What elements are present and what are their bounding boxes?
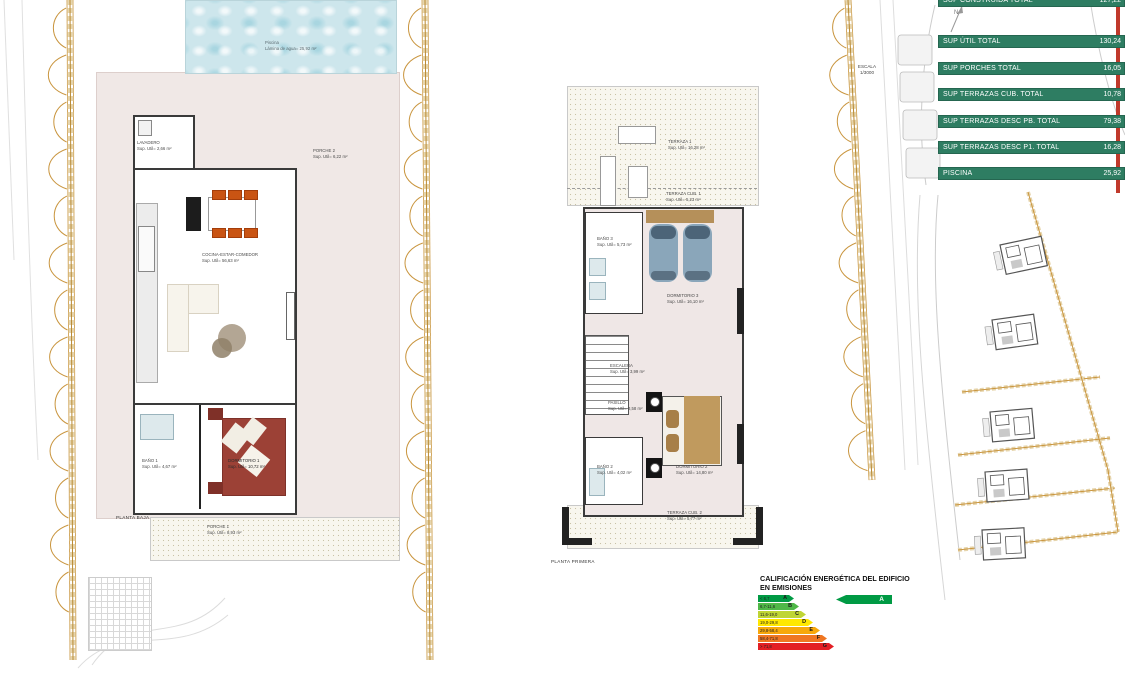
areas-row-label: SUP TERRAZAS DESC P1. TOTAL [943, 141, 1059, 154]
nightstand-lamp [650, 397, 660, 407]
energy-scale: < 6,7A 6,7-11,6B 11,6-19,0C 19,0-29,8D 2… [758, 595, 938, 655]
room-label-porche1: PORCHE 1 Sup. Util= 8,93 m² [207, 524, 242, 536]
energy-band-f: 58,4-71,8F [758, 635, 827, 642]
rug [212, 338, 232, 358]
chair [228, 228, 242, 238]
bed-3-pillow [651, 226, 676, 239]
room-label-lavadero: LAVADERO Sup. Util= 2,66 m² [137, 140, 172, 152]
bathroom1-sink [140, 414, 174, 440]
room-area: Sup. Util= 2,66 m² [137, 146, 172, 152]
band-range: 58,4-71,8 [760, 635, 778, 642]
energy-band-b: 6,7-11,6B [758, 603, 799, 610]
washer-icon [138, 120, 152, 136]
kitchen-sink [138, 226, 155, 272]
room-area: Sup. Util= 8,93 m² [207, 530, 242, 536]
areas-row-label: SUP TERRAZAS CUB. TOTAL [943, 88, 1043, 101]
areas-row-label: SUP TERRAZAS DESC PB. TOTAL [943, 115, 1060, 128]
band-letter: E [809, 627, 813, 634]
band-letter: C [795, 611, 799, 618]
nightstand-lamp [650, 463, 660, 473]
areas-row-label: SUP PORCHES TOTAL [943, 62, 1021, 75]
band-range: 19,0-29,8 [760, 619, 778, 626]
nightstand [208, 408, 223, 420]
room-label-terraza-cub1: TERRAZA CUB. 1 Sup. Util= 5,23 m² [666, 191, 701, 203]
areas-row: SUP TERRAZAS CUB. TOTAL 10,78 [938, 88, 1125, 101]
room-label-porche2: PORCHE 2 Sup. Util= 6,22 m² [313, 148, 348, 160]
planter [618, 126, 656, 144]
areas-row: SUP ÚTIL TOTAL 130,24 [938, 35, 1125, 48]
dining-table [208, 197, 256, 231]
scale-value: 1/3000 [845, 70, 889, 76]
corner-wall [562, 507, 569, 545]
bed-3-headboard [646, 210, 714, 223]
areas-row-value: 16,28 [1103, 141, 1121, 154]
chair [212, 190, 226, 200]
areas-row: SUP TERRAZAS DESC P1. TOTAL 16,28 [938, 141, 1125, 154]
wall-pilaster [737, 424, 744, 464]
areas-table: SUP CONSTRUIDA TOTAL 127,22 SUP ÚTIL TOT… [938, 0, 1125, 190]
areas-row: PISCINA 25,92 [938, 167, 1125, 180]
bed-3-pillow [685, 226, 710, 239]
chair [228, 190, 242, 200]
energy-band-e: 29,8-58,4E [758, 627, 820, 634]
areas-row-label: SUP CONSTRUIDA TOTAL [943, 0, 1033, 7]
kitchen-island [186, 197, 201, 231]
terraza-divider [567, 188, 757, 189]
scale-label: ESCALA 1/3000 [845, 64, 889, 76]
deck-hatch [88, 577, 152, 651]
chair [244, 190, 258, 200]
room-area: Sup. Util= 56,63 m² [202, 258, 258, 264]
areas-row: SUP PORCHES TOTAL 16,05 [938, 62, 1125, 75]
room-label-pasillo: PASILLO Sup. Util= 3,58 m² [608, 400, 643, 412]
porch1-area [150, 517, 400, 561]
pool-label: Piscina Lámina de agua= 25,92 m² [265, 40, 316, 52]
room-label-dormitorio3: DORMITORIO 3 Sup. Util= 16,10 m² [667, 293, 704, 305]
first-floor-title: PLANTA PRIMERA [551, 559, 595, 564]
planter [628, 166, 648, 198]
bed-2-pillow [666, 434, 679, 452]
bed-2-pillow [666, 410, 679, 428]
room-area: Sup. Util= 16,10 m² [667, 299, 704, 305]
bathroom3-fixture [589, 258, 606, 276]
band-letter: A [783, 595, 787, 602]
areas-row-value: 130,24 [1100, 35, 1121, 48]
band-letter: F [817, 635, 820, 642]
band-range: 29,8-58,4 [760, 627, 778, 634]
nightstand [208, 482, 223, 494]
energy-rating-arrow: A [836, 595, 892, 604]
room-label-bano2: BAÑO 2 Sup. Util= 4,02 m² [597, 464, 632, 476]
areas-row-value: 16,05 [1103, 62, 1121, 75]
band-range: 6,7-11,6 [760, 603, 775, 610]
band-range: 11,6-19,0 [760, 611, 777, 618]
room-label-terraza-cub2: TERRAZA CUB. 2 Sup. Util= 5,77 m² [667, 510, 702, 522]
wall-divider [199, 405, 201, 509]
room-area: Sup. Util= 4,02 m² [597, 470, 632, 476]
room-area: Sup. Util= 5,23 m² [666, 197, 701, 203]
band-letter: D [802, 619, 806, 626]
bed-2-cover [684, 396, 720, 464]
sofa [167, 284, 189, 352]
ground-floor-title: PLANTA BAJA [116, 515, 149, 520]
room-label-cocina: COCINA-ESTAR-COMEDOR Sup. Util= 56,63 m² [202, 252, 258, 264]
room-area: Sup. Util= 6,22 m² [313, 154, 348, 160]
room-area: Sup. Util= 16,28 m² [668, 145, 705, 151]
room-label-dormitorio1: DORMITORIO 1 Sup. Util= 10,72 m² [228, 458, 265, 470]
room-label-escalera: ESCALERA Sup. Util= 3,99 m² [610, 363, 645, 375]
areas-row-label: SUP ÚTIL TOTAL [943, 35, 1001, 48]
pool [185, 0, 397, 74]
room-area: Sup. Util= 5,77 m² [667, 516, 702, 522]
areas-row-value: 25,92 [1103, 167, 1121, 180]
chair [244, 228, 258, 238]
room-label-bano1: BAÑO 1 Sup. Util= 4,67 m² [142, 458, 177, 470]
room-area: Sup. Util= 14,80 m² [676, 470, 713, 476]
band-range: > 71,8 [760, 643, 772, 650]
window-seat [286, 292, 295, 340]
areas-row-value: 127,22 [1100, 0, 1121, 7]
room-area: Sup. Util= 3,99 m² [610, 369, 645, 375]
energy-title-line2: EN EMISIONES [760, 583, 910, 592]
bathroom3-fixture [589, 282, 606, 300]
plan-sheet: Piscina Lámina de agua= 25,92 m² LAVADER… [0, 0, 1125, 678]
pool-area: Lámina de agua= 25,92 m² [265, 46, 316, 52]
energy-band-a: < 6,7A [758, 595, 794, 602]
areas-row: SUP TERRAZAS DESC PB. TOTAL 79,38 [938, 115, 1125, 128]
areas-row-value: 79,38 [1103, 115, 1121, 128]
room-area: Sup. Util= 3,58 m² [608, 406, 643, 412]
band-letter: B [788, 603, 792, 610]
energy-rating-letter: A [879, 595, 884, 604]
room-area: Sup. Util= 10,72 m² [228, 464, 265, 470]
areas-row: SUP CONSTRUIDA TOTAL 127,22 [938, 0, 1125, 7]
planter [600, 156, 616, 206]
areas-row-label: PISCINA [943, 167, 972, 180]
energy-title-line1: CALIFICACIÓN ENERGÉTICA DEL EDIFICIO [760, 574, 910, 583]
bed-3-foot [685, 271, 710, 280]
areas-row-value: 10,78 [1103, 88, 1121, 101]
room-label-bano3: BAÑO 3 Sup. Util= 5,73 m² [597, 236, 632, 248]
corner-wall [756, 507, 763, 545]
room-label-dormitorio2: DORMITORIO 2 Sup. Util= 14,80 m² [676, 464, 713, 476]
chair [212, 228, 226, 238]
energy-band-d: 19,0-29,8D [758, 619, 813, 626]
bed-3-foot [651, 271, 676, 280]
room-area: Sup. Util= 4,67 m² [142, 464, 177, 470]
band-letter: G [823, 643, 827, 650]
room-area: Sup. Util= 5,73 m² [597, 242, 632, 248]
room-label-terraza1: TERRAZA 1 Sup. Util= 16,28 m² [668, 139, 705, 151]
energy-title: CALIFICACIÓN ENERGÉTICA DEL EDIFICIO EN … [760, 574, 910, 593]
band-range: < 6,7 [760, 595, 769, 602]
wall-pilaster [737, 288, 744, 334]
energy-band-g: > 71,8G [758, 643, 834, 650]
energy-band-c: 11,6-19,0C [758, 611, 806, 618]
